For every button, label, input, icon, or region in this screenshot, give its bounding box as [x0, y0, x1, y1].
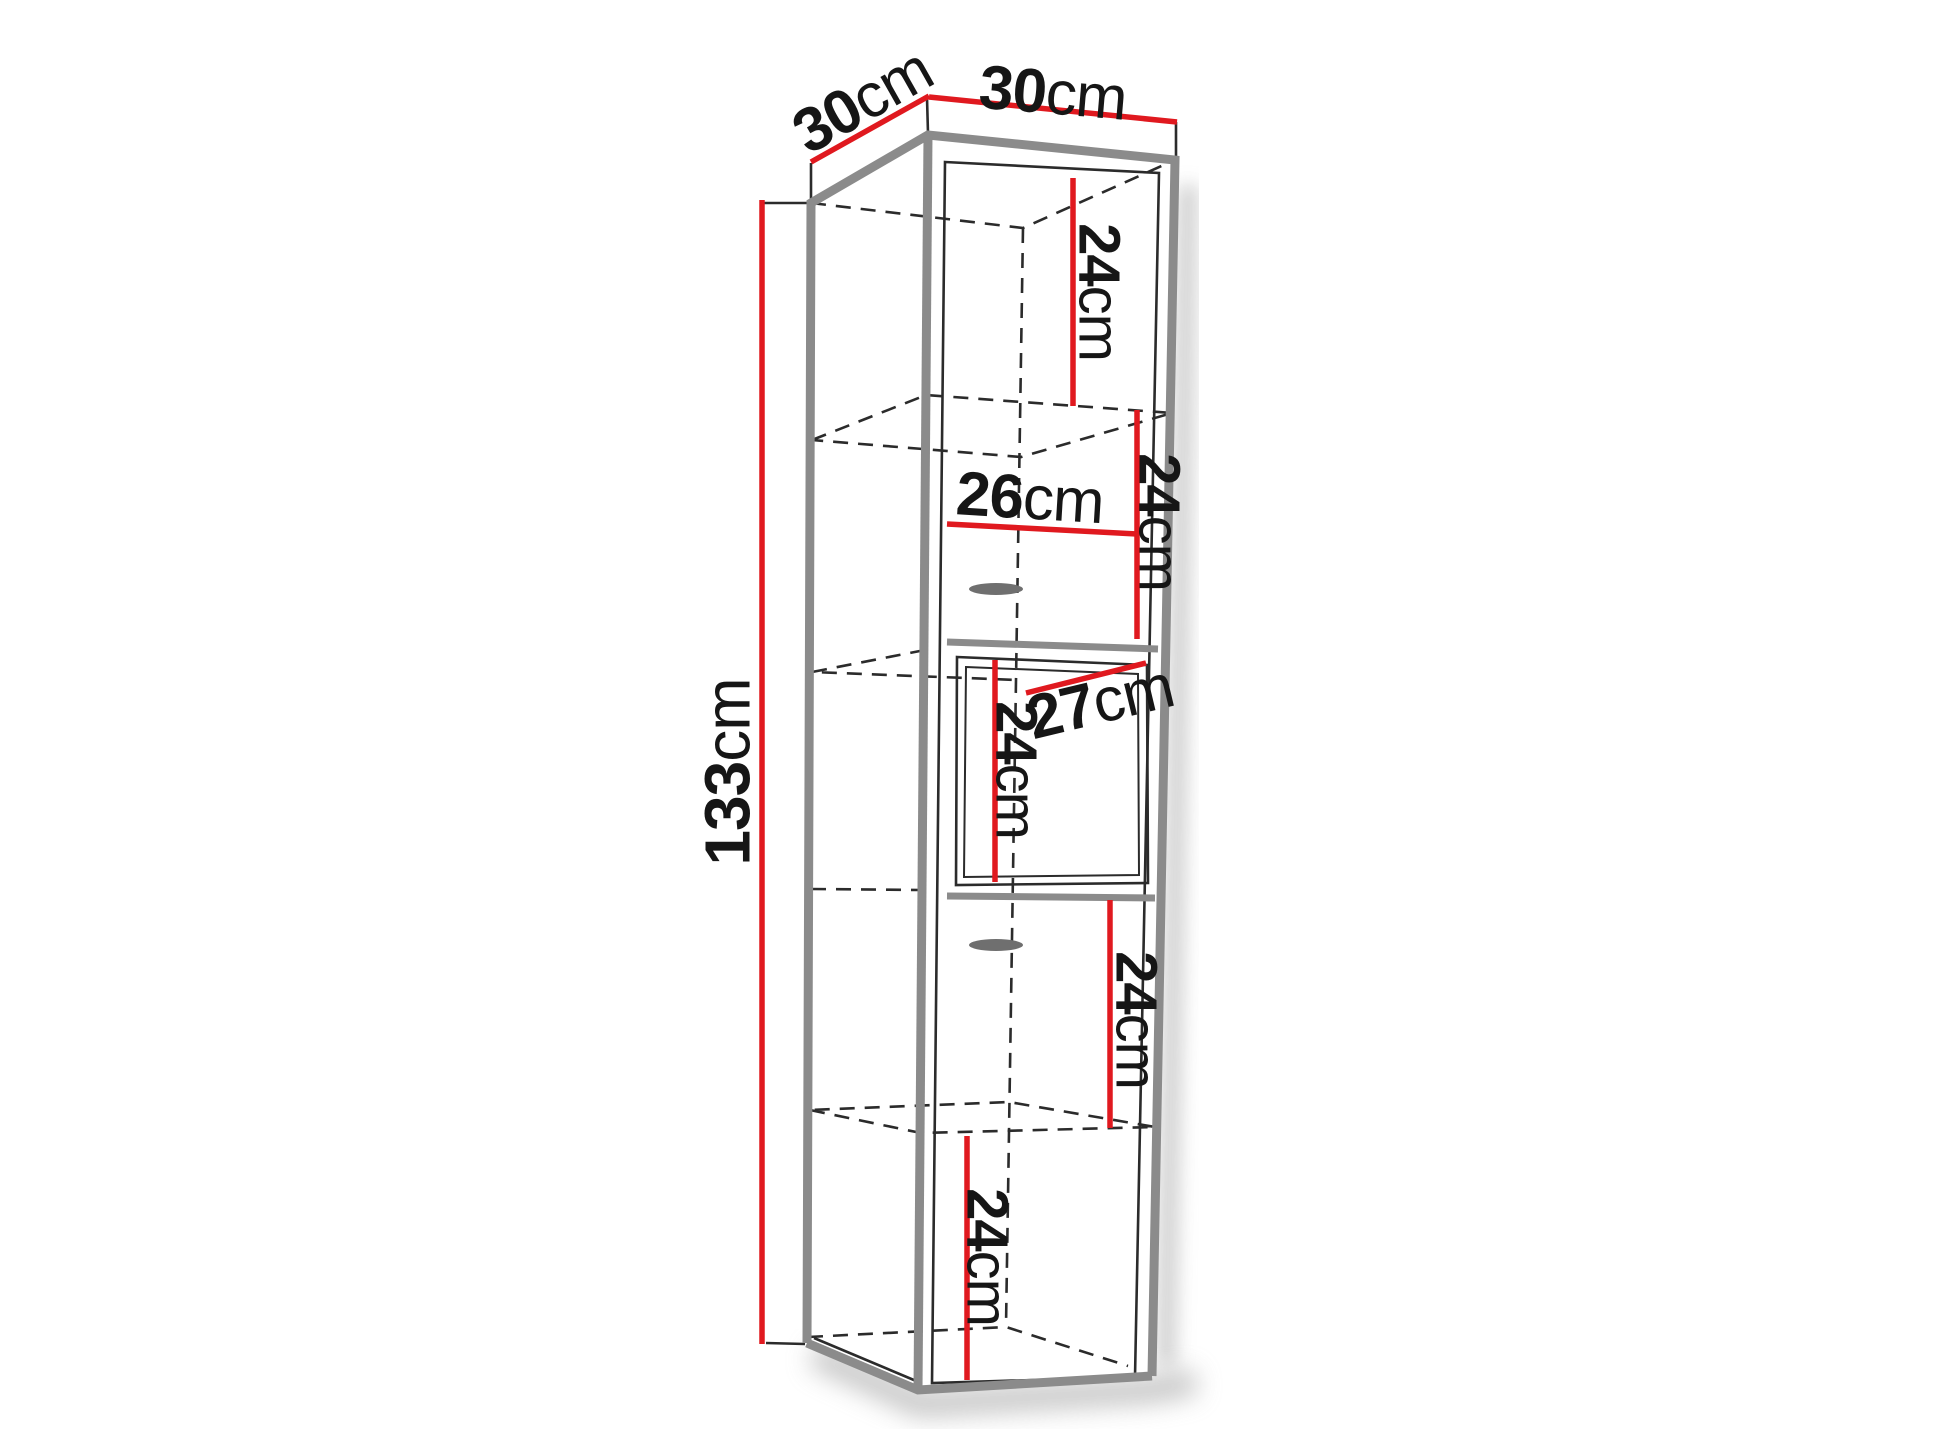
lower-door-handle-icon [969, 939, 1023, 951]
upper-door-handle-icon [969, 583, 1023, 595]
ext-tick-height-bottom [766, 1343, 805, 1344]
dim-label-compartment-5: 24cm [955, 1188, 1020, 1326]
cabinet-dimension-diagram: 30cm 30cm 133cm 24cm 24cm 26cm 27cm 24cm… [0, 0, 1940, 1455]
diagram-canvas: 30cm 30cm 133cm 24cm 24cm 26cm 27cm 24cm… [0, 0, 1940, 1455]
dim-label-door-height: 24cm [984, 701, 1049, 839]
dim-label-interior-width: 26cm [954, 459, 1106, 537]
open-compartment-bottom-edge [947, 896, 1155, 898]
dim-label-compartment-2: 24cm [1127, 453, 1192, 591]
dim-label-compartment-4: 24cm [1104, 951, 1169, 1089]
dim-label-height-overall: 133cm [691, 678, 763, 865]
dim-label-width-top: 30cm [976, 53, 1129, 134]
dim-label-compartment-1: 24cm [1067, 223, 1132, 361]
